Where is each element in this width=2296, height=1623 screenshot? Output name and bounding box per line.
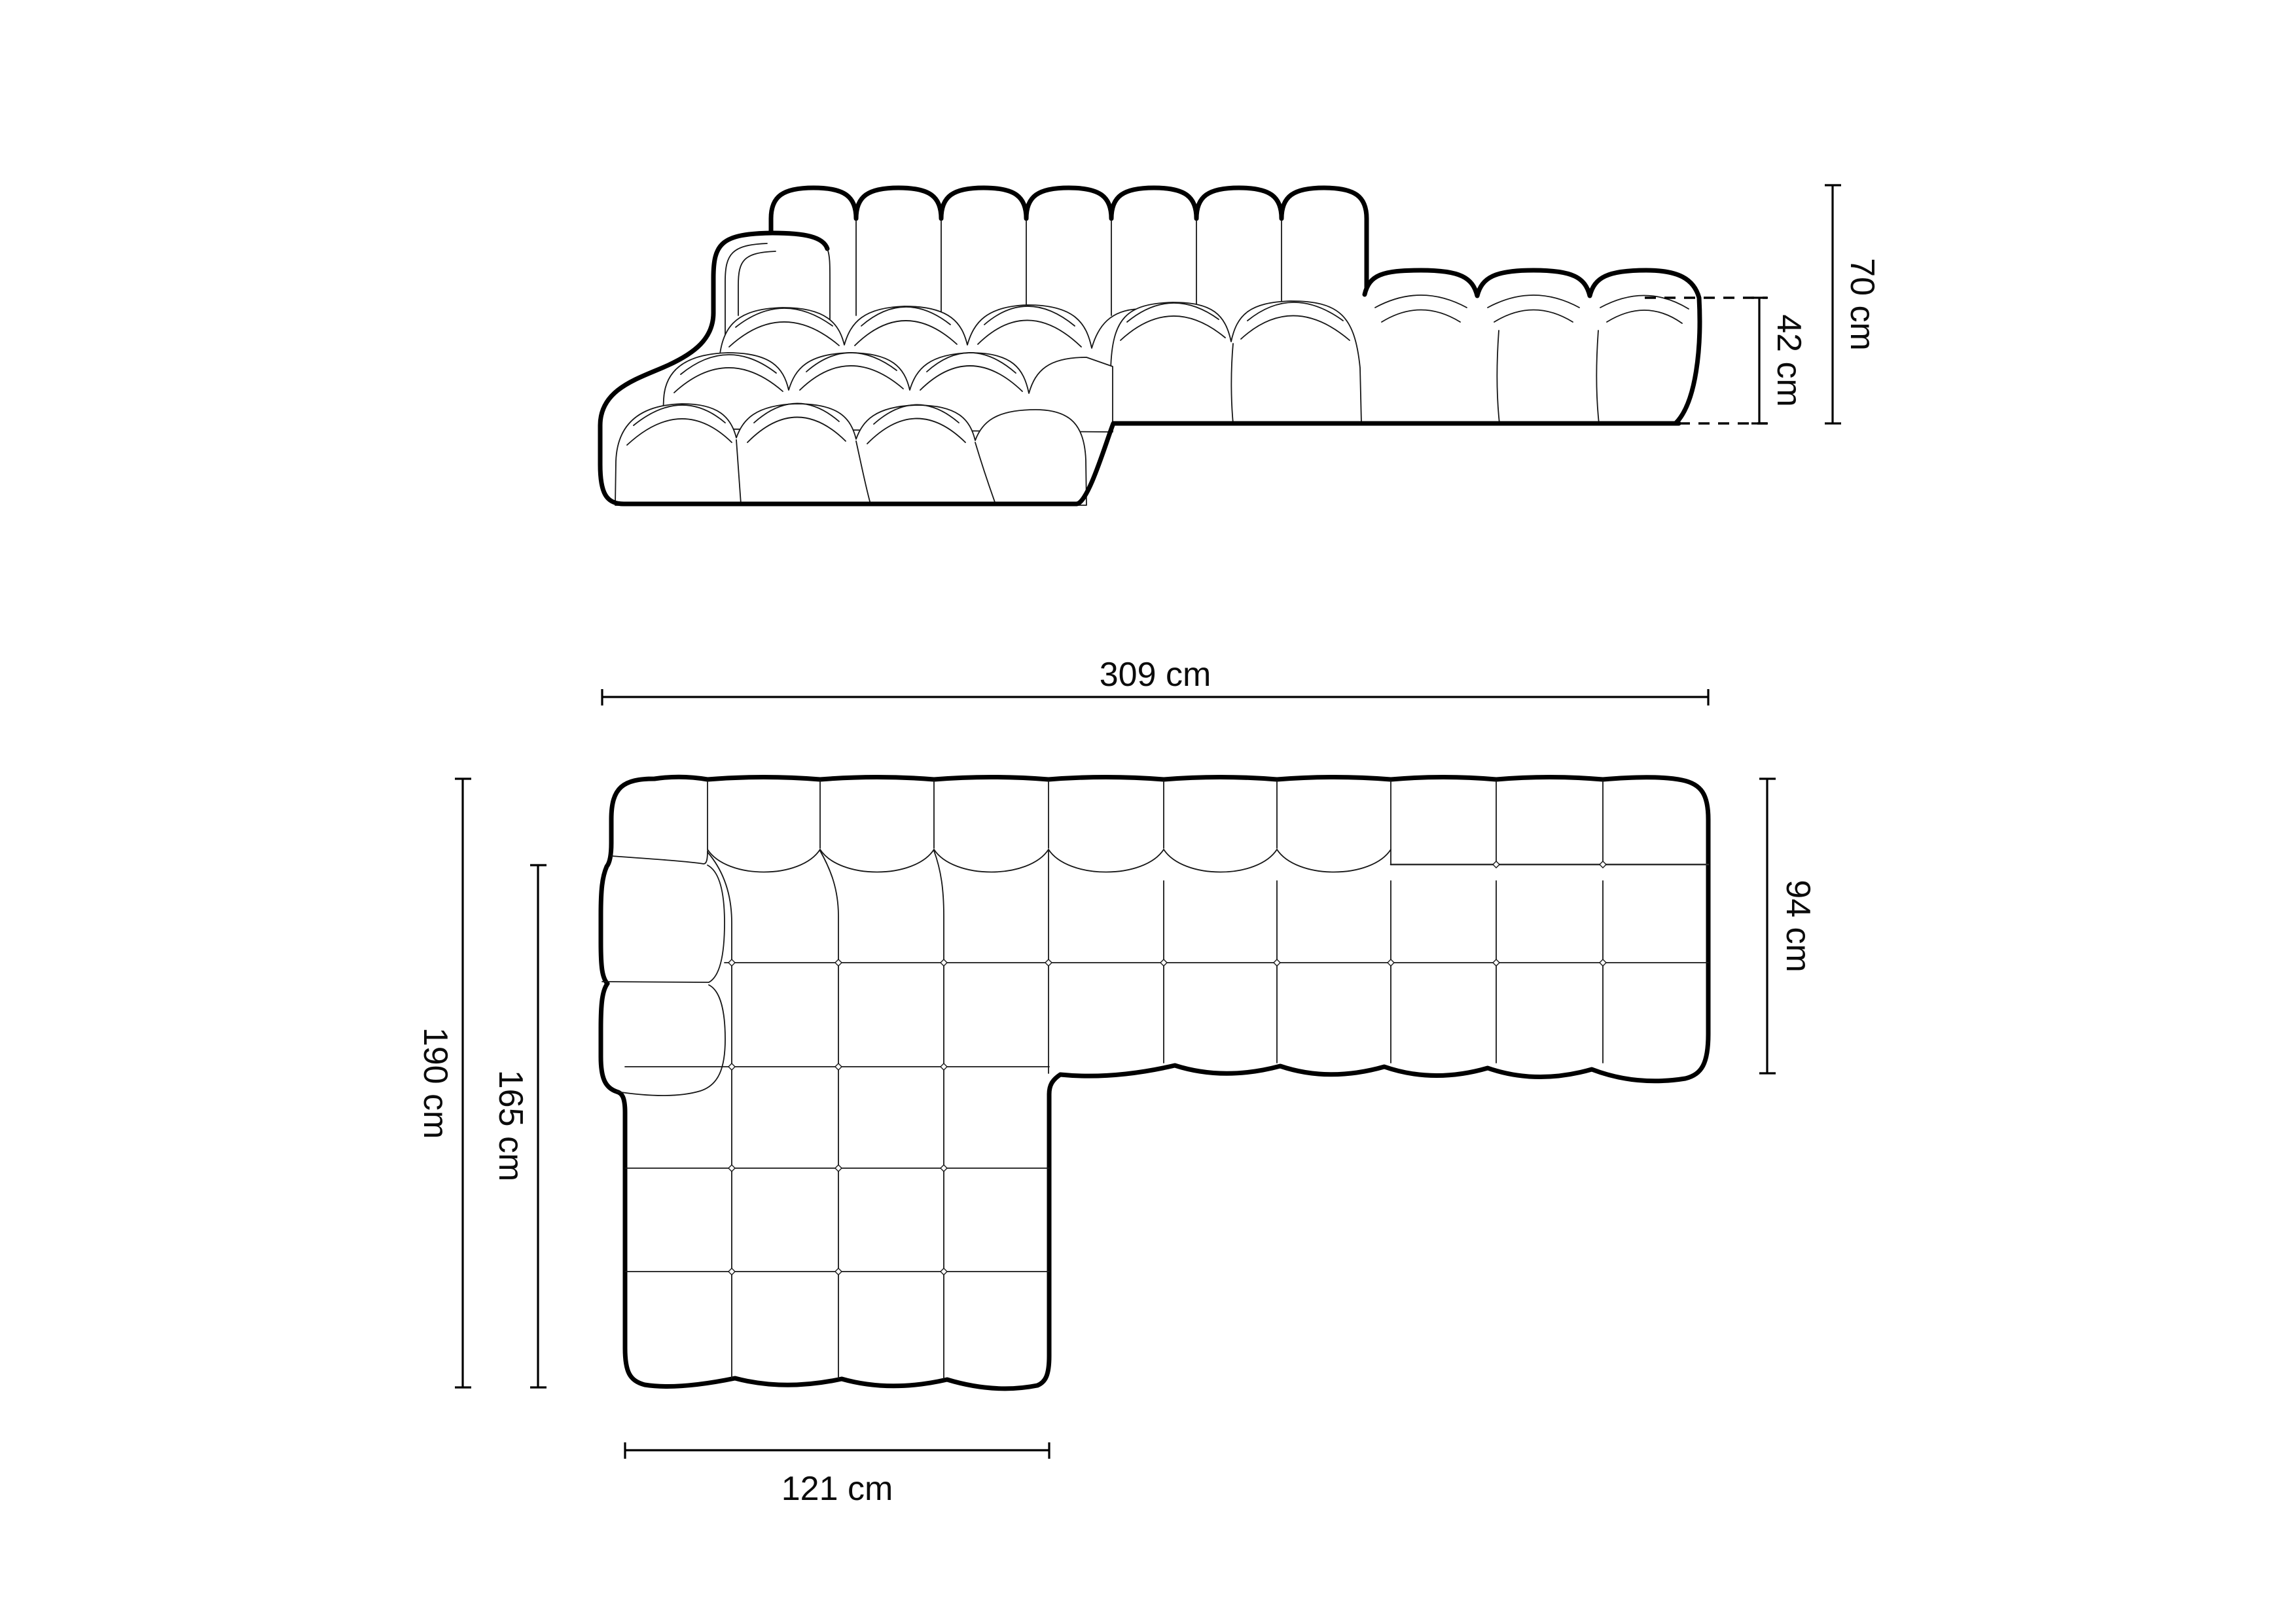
dimension-chaise-width: 121 cm [625,1442,1049,1508]
dimension-label-121cm: 121 cm [781,1470,893,1508]
dimension-label-165cm: 165 cm [492,1070,529,1182]
dimension-total-width: 309 cm [602,656,1708,705]
dimension-seat-height: 42 cm [1751,298,1808,423]
plan-outline [601,777,1708,1389]
dimension-label-94cm: 94 cm [1779,880,1817,972]
dimension-left-depth: 190 cm [416,779,471,1387]
diagram-page: 42 cm 70 cm [0,0,2296,1623]
dimension-label-190cm: 190 cm [416,1027,454,1139]
front-view: 42 cm 70 cm [600,185,1881,505]
right-seat-cushions [1111,301,1361,423]
sofa-dimension-diagram: 42 cm 70 cm [0,0,2296,1623]
dimension-right-depth: 94 cm [1759,779,1817,1073]
dimension-total-height: 70 cm [1825,185,1881,423]
plan-view: 309 cm 94 cm 190 cm 165 cm 1 [416,656,1817,1508]
dimension-label-42cm: 42 cm [1770,314,1808,407]
dimension-label-309cm: 309 cm [1100,656,1211,694]
dimension-chaise-length: 165 cm [492,865,547,1387]
dimension-label-70cm: 70 cm [1843,258,1881,351]
low-modules [1365,270,1700,423]
plan-interior-seams [602,781,1708,1378]
backrest-channel-seams [856,221,1282,315]
backrest-outline [771,188,1367,291]
